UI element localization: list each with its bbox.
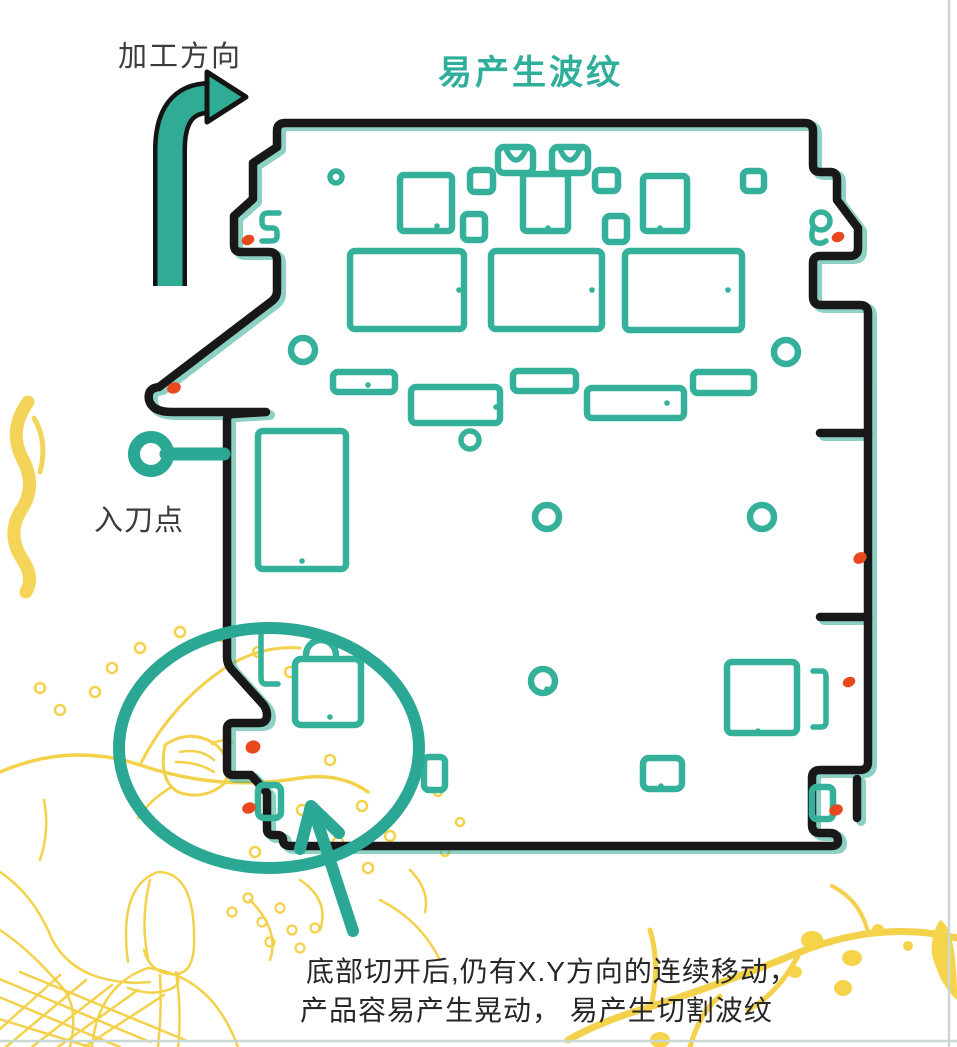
component-clip bbox=[812, 212, 830, 243]
component-bracket bbox=[813, 671, 826, 727]
component-rect bbox=[605, 216, 627, 242]
mounting-ring bbox=[774, 340, 798, 364]
bottom-note-line2: 产品容易产生晃动， 易产生切割波纹 bbox=[300, 991, 798, 1030]
component-rect bbox=[693, 372, 754, 393]
bottom-note: 底部切开后,仍有X.Y方向的连续移动， 产品容易产生晃动， 易产生切割波纹 bbox=[300, 952, 798, 1030]
pin-ticks bbox=[299, 223, 761, 789]
component-rect bbox=[470, 170, 493, 192]
mounting-ring bbox=[330, 171, 342, 183]
component-rect bbox=[625, 251, 742, 330]
component-rect bbox=[595, 170, 618, 191]
component-clip bbox=[262, 213, 279, 241]
mounting-ring bbox=[531, 669, 555, 693]
mounting-ring bbox=[291, 338, 315, 362]
bottom-note-line1: 底部切开后,仍有X.Y方向的连续移动， bbox=[300, 952, 798, 991]
component-rect bbox=[812, 787, 833, 819]
component-rect bbox=[523, 174, 568, 231]
component-rect bbox=[333, 372, 395, 392]
component-rect bbox=[400, 175, 452, 231]
decoration-brushstroke-left bbox=[14, 402, 43, 592]
component-clip bbox=[498, 147, 588, 173]
component-rect bbox=[350, 251, 464, 329]
mounting-ring bbox=[535, 505, 559, 529]
component-rect bbox=[491, 251, 602, 329]
mounting-ring bbox=[750, 505, 774, 529]
component-rect bbox=[463, 214, 485, 240]
component-bracket bbox=[261, 628, 278, 684]
component-rect bbox=[743, 171, 764, 191]
component-rect bbox=[424, 757, 445, 790]
diagram-canvas: 加工方向 易产生波纹 入刀点 底部切开后,仍有X.Y方向的连续移动， 产品容易产… bbox=[0, 0, 957, 1047]
component-rect bbox=[258, 431, 346, 569]
mounting-ring bbox=[461, 431, 479, 449]
entry-point-marker bbox=[134, 437, 224, 471]
entry-point-label: 入刀点 bbox=[94, 497, 184, 539]
component-rect bbox=[727, 662, 797, 733]
pcb-components bbox=[258, 147, 833, 819]
component-rect bbox=[411, 387, 500, 423]
component-rect bbox=[643, 176, 687, 231]
component-rect bbox=[513, 371, 576, 391]
processing-direction-label: 加工方向 bbox=[118, 33, 242, 75]
red-defect-markers bbox=[166, 230, 869, 818]
ripple-warning-title: 易产生波纹 bbox=[438, 45, 623, 94]
